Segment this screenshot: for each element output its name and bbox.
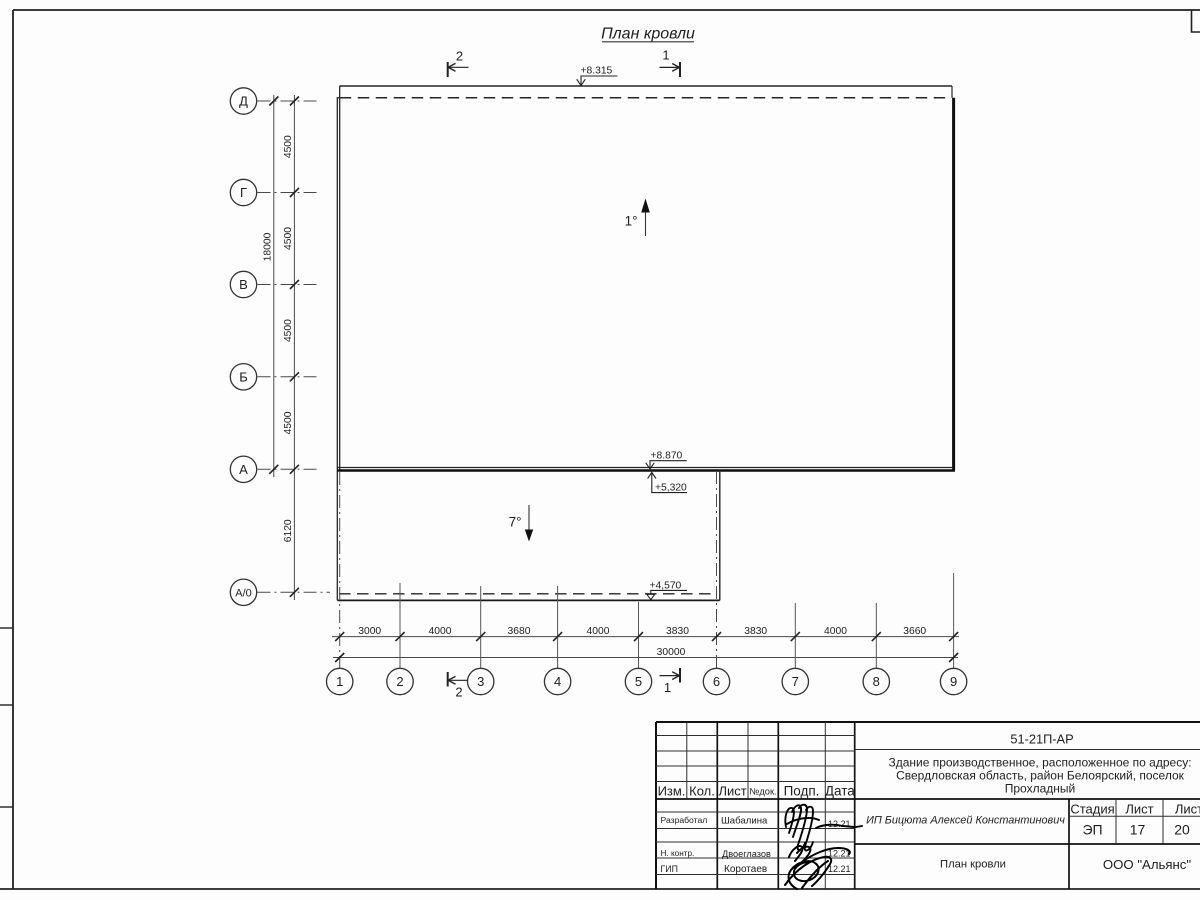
svg-text:+8.870: +8.870 [651, 450, 683, 461]
svg-text:Б: Б [239, 369, 248, 384]
svg-text:Листов: Листов [1175, 802, 1200, 817]
svg-text:9: 9 [950, 674, 957, 689]
svg-text:6: 6 [713, 674, 720, 689]
svg-text:1: 1 [662, 48, 669, 63]
svg-text:Изм.: Изм. [658, 784, 686, 799]
svg-text:4000: 4000 [429, 626, 452, 637]
svg-text:Лист: Лист [1125, 802, 1153, 817]
svg-text:4: 4 [554, 674, 561, 689]
svg-text:В: В [239, 277, 248, 292]
svg-text:ООО "Альянс": ООО "Альянс" [1103, 857, 1191, 872]
svg-text:5: 5 [635, 674, 642, 689]
svg-text:Д: Д [239, 94, 248, 109]
svg-text:План кровли: План кровли [601, 26, 695, 43]
svg-text:12.21: 12.21 [828, 864, 851, 874]
svg-text:51-21П-АР: 51-21П-АР [1010, 732, 1073, 747]
svg-text:4500: 4500 [283, 227, 294, 250]
svg-text:3830: 3830 [666, 626, 689, 637]
svg-text:4000: 4000 [587, 626, 610, 637]
svg-text:1°: 1° [625, 214, 638, 229]
svg-text:3660: 3660 [903, 626, 926, 637]
svg-text:№док.: №док. [749, 787, 776, 797]
svg-text:Коротаев: Коротаев [724, 864, 767, 875]
svg-text:Дата: Дата [825, 784, 855, 799]
svg-text:ЭП: ЭП [1082, 822, 1102, 838]
svg-text:Стадия: Стадия [1070, 802, 1114, 817]
svg-text:3830: 3830 [744, 626, 767, 637]
svg-text:А: А [239, 462, 248, 477]
svg-text:Прохладный: Прохладный [1005, 781, 1075, 795]
svg-text:Кол.: Кол. [689, 784, 715, 799]
svg-text:Лист: Лист [718, 784, 746, 799]
svg-text:1: 1 [336, 674, 343, 689]
svg-text:3000: 3000 [358, 626, 381, 637]
svg-text:4500: 4500 [283, 411, 294, 434]
svg-text:6120: 6120 [283, 519, 294, 542]
svg-text:А/0: А/0 [235, 587, 252, 599]
svg-text:18000: 18000 [262, 232, 273, 261]
svg-text:17: 17 [1130, 822, 1146, 838]
svg-text:Разработал: Разработал [661, 815, 708, 825]
svg-text:3680: 3680 [508, 626, 531, 637]
svg-text:Свердловская область, район Бе: Свердловская область, район Белоярский, … [896, 768, 1185, 782]
svg-text:1: 1 [664, 680, 671, 695]
svg-text:План кровли: План кровли [940, 858, 1006, 870]
svg-text:ГИП: ГИП [661, 864, 678, 874]
svg-text:+5,320: +5,320 [655, 483, 687, 494]
svg-text:2: 2 [455, 685, 462, 700]
svg-text:4500: 4500 [283, 319, 294, 342]
svg-text:7: 7 [792, 674, 799, 689]
svg-text:Подп.: Подп. [784, 784, 820, 799]
svg-text:7°: 7° [509, 515, 522, 530]
svg-text:ИП Бицюта Алексей Константинов: ИП Бицюта Алексей Константинович [866, 814, 1065, 826]
svg-text:Двоеглазов: Двоеглазов [722, 849, 771, 859]
svg-text:8: 8 [873, 674, 880, 689]
svg-text:Г: Г [240, 185, 247, 200]
svg-text:3: 3 [477, 674, 484, 689]
svg-text:Н. контр.: Н. контр. [661, 849, 695, 858]
svg-text:+8.315: +8.315 [581, 66, 613, 77]
svg-text:Шабалина: Шабалина [721, 815, 768, 826]
svg-text:4500: 4500 [283, 135, 294, 158]
svg-text:20: 20 [1174, 822, 1190, 838]
svg-text:2: 2 [456, 49, 463, 64]
svg-text:30000: 30000 [657, 647, 686, 658]
svg-text:2: 2 [396, 674, 403, 689]
svg-text:Здание производственное, распо: Здание производственное, расположенное п… [888, 755, 1191, 769]
svg-text:4000: 4000 [824, 626, 847, 637]
